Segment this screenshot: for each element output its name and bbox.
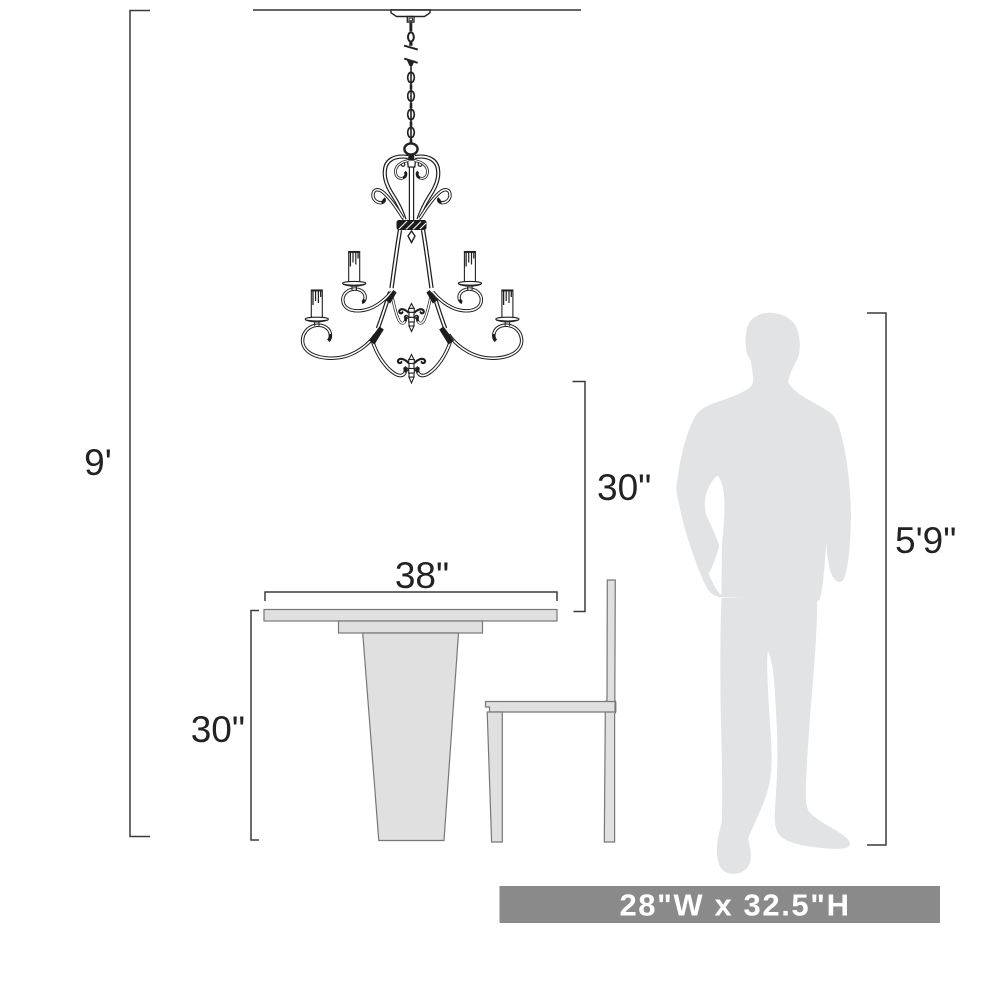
svg-text:30": 30": [597, 467, 651, 508]
svg-text:9': 9': [84, 442, 112, 483]
svg-text:30": 30": [191, 709, 245, 750]
svg-text:5'9": 5'9": [895, 520, 956, 561]
svg-text:28"W x 32.5"H: 28"W x 32.5"H: [619, 888, 850, 923]
svg-text:38": 38": [395, 555, 449, 596]
